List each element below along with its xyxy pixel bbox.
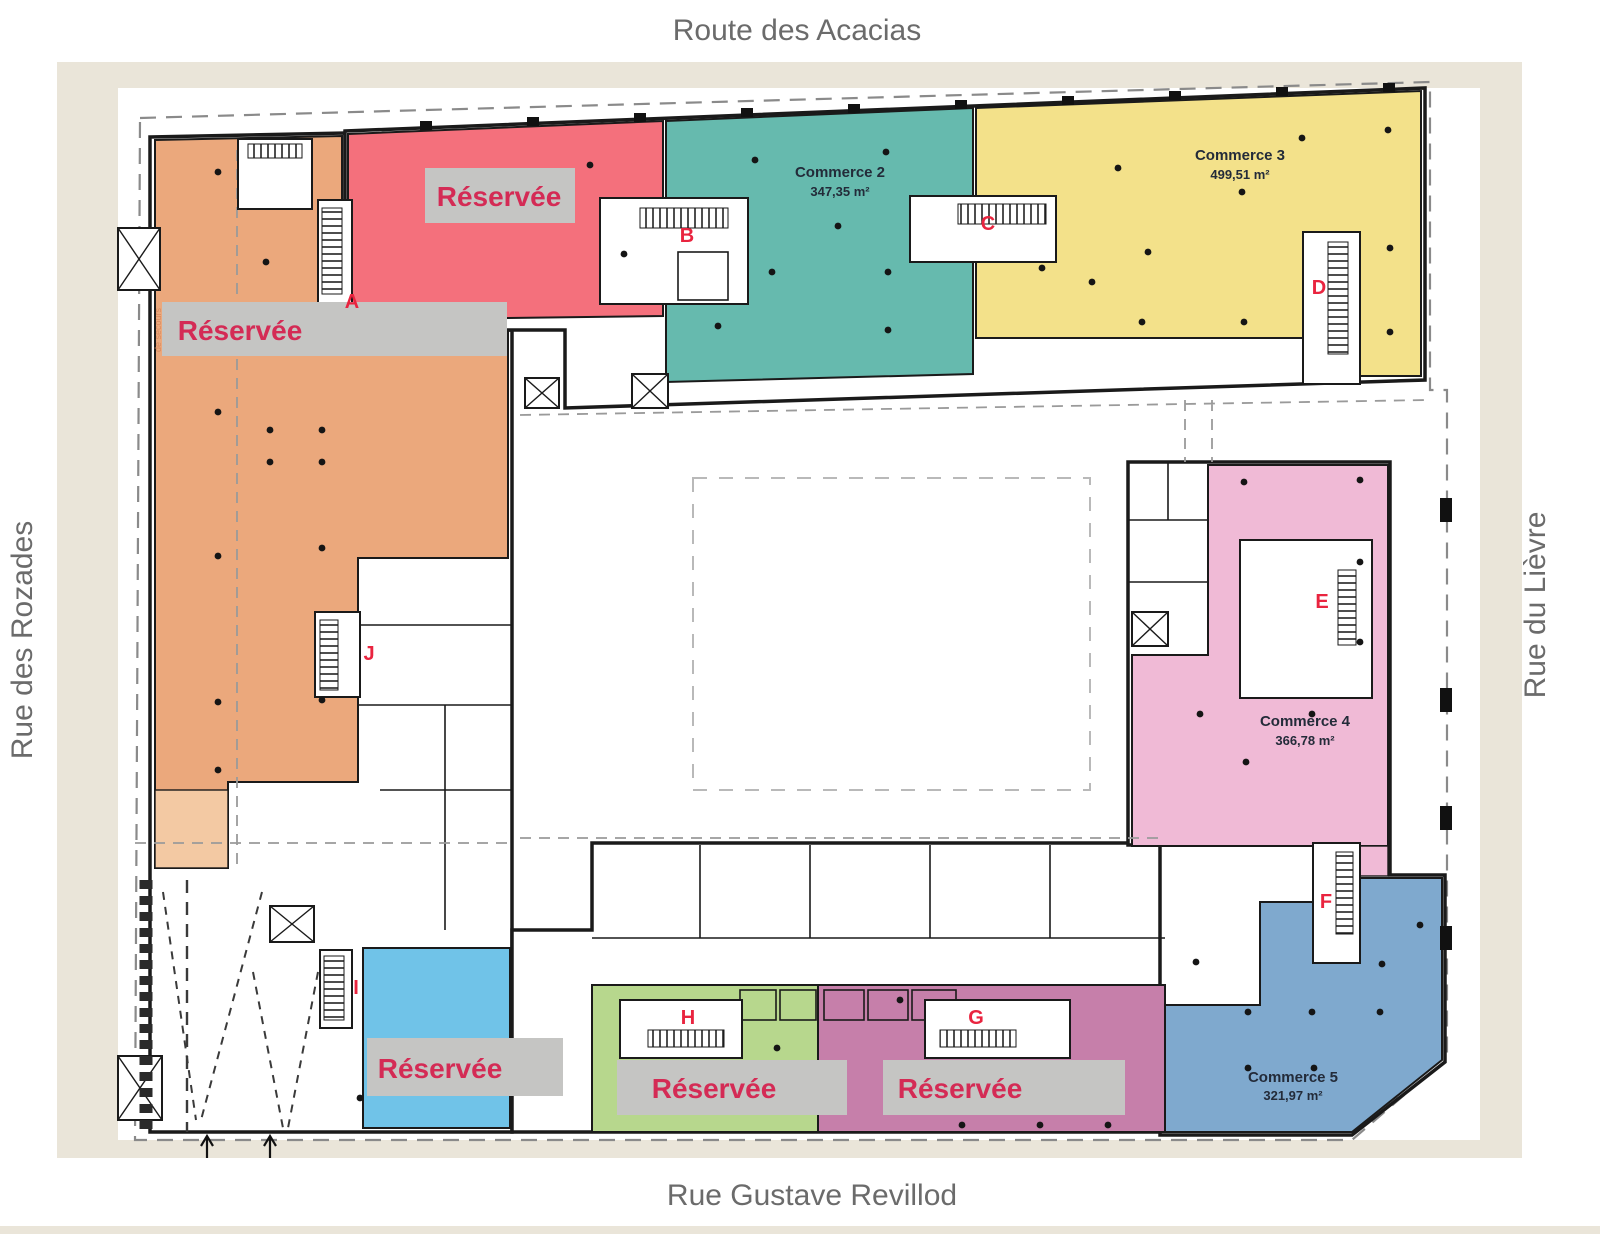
stair-hatch <box>648 1030 724 1047</box>
courtyard-dashed <box>693 478 1090 790</box>
label-commerce-2-name: Commerce 2 <box>795 164 885 181</box>
stair-hatch <box>940 1030 1016 1047</box>
zone-commerce-4-tail <box>1360 846 1388 876</box>
stair-letter-e: E <box>1315 591 1328 613</box>
stair-letter-h: H <box>681 1007 695 1029</box>
floor-plan: Réservée Réservée Réservée Réservée Rése… <box>0 0 1600 1234</box>
label-reserved-green: Réservée <box>652 1073 777 1104</box>
stair-hatch <box>1336 852 1353 934</box>
elevator-x-icon <box>525 378 559 408</box>
label-commerce-5-name: Commerce 5 <box>1248 1069 1338 1086</box>
stair-letter-g: G <box>968 1007 984 1029</box>
elevator-x-icon <box>118 228 160 290</box>
elevator-x-icon <box>1132 612 1168 646</box>
label-reserved-lightblue: Réservée <box>378 1053 503 1084</box>
label-reserved-top: Réservée <box>437 181 562 212</box>
label-commerce-3-name: Commerce 3 <box>1195 147 1285 164</box>
street-top: Route des Acacias <box>673 14 921 47</box>
stair-letter-a: A <box>345 291 359 313</box>
street-right: Rue du Lièvre <box>1519 512 1552 699</box>
stair-hatch <box>958 204 1046 224</box>
stair-hatch <box>322 208 342 294</box>
stair-letter-f: F <box>1320 891 1332 913</box>
zone-reserved-left-light <box>155 790 228 868</box>
stair-letter-d: D <box>1312 277 1326 299</box>
label-reserved-left: Réservée <box>178 315 303 346</box>
label-commerce-5-area: 321,97 m² <box>1263 1088 1323 1103</box>
stair-hatch <box>1338 570 1356 645</box>
stair-letter-i: I <box>353 977 359 999</box>
stair-letter-c: C <box>981 213 995 235</box>
elevator-x-icon <box>632 374 668 408</box>
street-bottom: Rue Gustave Revillod <box>667 1179 957 1212</box>
stair-hatch <box>320 620 338 690</box>
elevator-x-icon <box>270 906 314 942</box>
street-left: Rue des Rozades <box>6 521 39 759</box>
stair-letter-j: J <box>363 643 374 665</box>
label-commerce-3-area: 499,51 m² <box>1210 167 1270 182</box>
label-commerce-4-name: Commerce 4 <box>1260 713 1351 730</box>
label-commerce-4-area: 366,78 m² <box>1275 733 1335 748</box>
stair-hatch <box>324 956 344 1020</box>
frame-bottom-strip <box>0 1226 1600 1234</box>
stair-letter-b: B <box>680 225 694 247</box>
label-commerce-2-area: 347,35 m² <box>810 184 870 199</box>
emergency-exit-note: de secours <box>153 307 163 352</box>
stair-core-g <box>925 1000 1070 1058</box>
stair-hatch <box>1328 242 1348 354</box>
stair-hatch <box>248 144 302 158</box>
label-reserved-magenta: Réservée <box>898 1073 1023 1104</box>
